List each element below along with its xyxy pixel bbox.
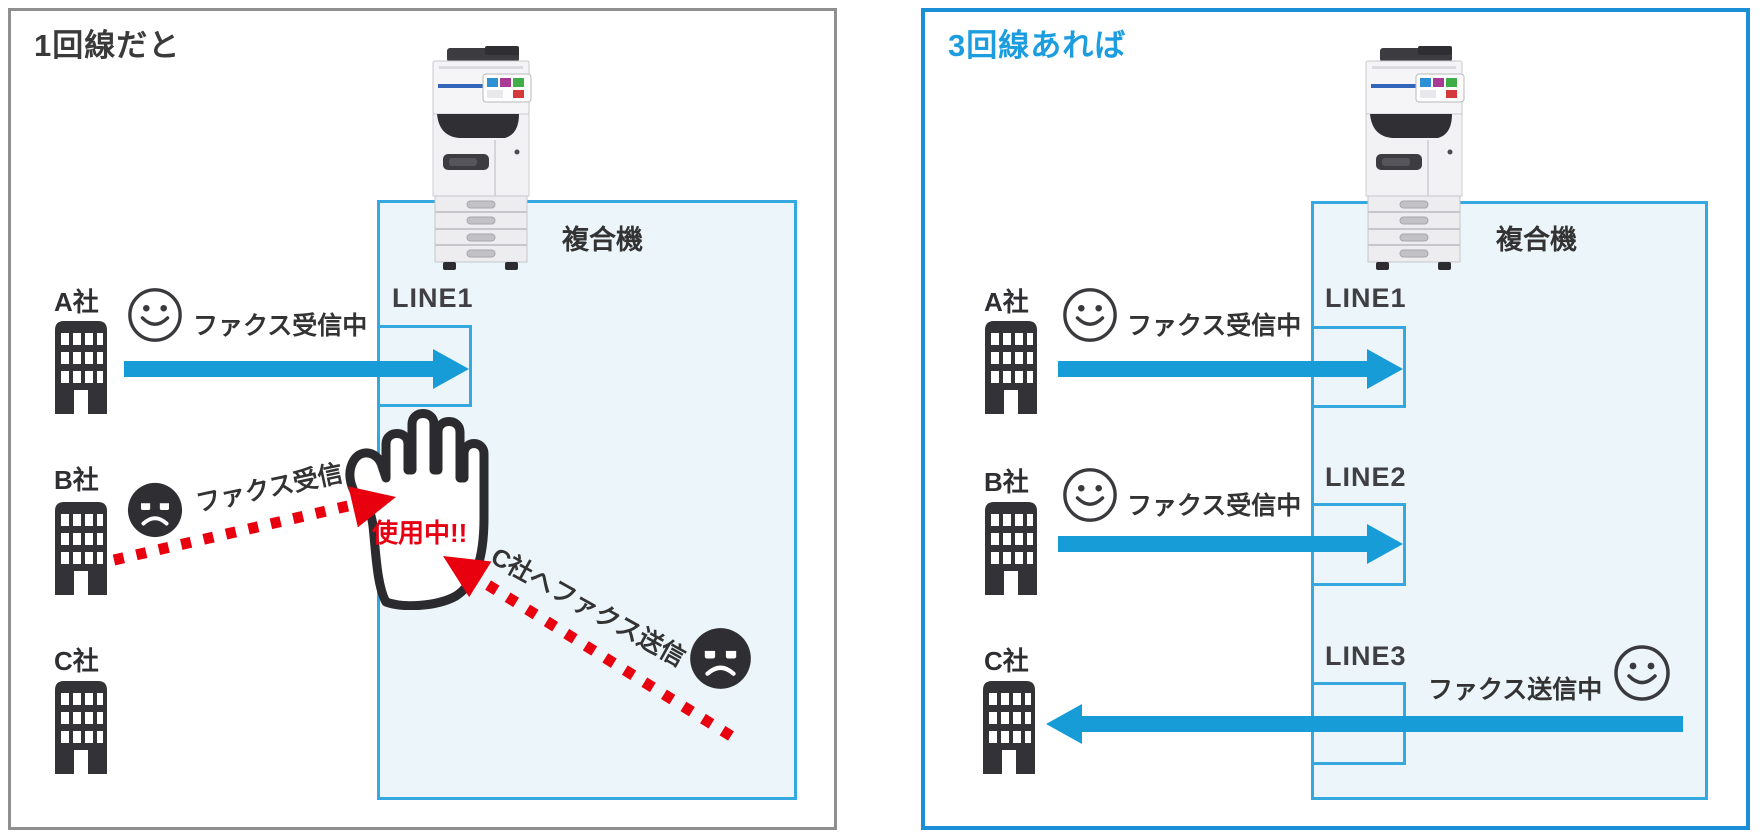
building-icon-c-right (978, 678, 1040, 774)
happy-face-icon-c-right (1612, 643, 1672, 703)
left-company-a-label: A社 (54, 282, 99, 319)
left-company-b-label: B社 (54, 460, 99, 497)
building-icon-b-left (50, 499, 112, 595)
building-icon-a-right (980, 318, 1042, 414)
building-icon-b-right (980, 499, 1042, 595)
mfp-printer-image-right (1358, 46, 1470, 272)
right-line2-label: LINE2 (1325, 462, 1407, 493)
left-company-a-status: ファクス受信中 (193, 306, 367, 342)
building-icon-a-left (50, 318, 112, 414)
sad-face-icon-b-left (126, 481, 184, 539)
right-panel-title: 3回線あれば (948, 20, 1126, 65)
right-line2-port (1311, 503, 1406, 586)
right-line3-label: LINE3 (1325, 641, 1407, 672)
mfp-printer-image-left (425, 46, 537, 272)
right-company-b-status: ファクス受信中 (1127, 486, 1301, 522)
right-company-a-status: ファクス受信中 (1127, 306, 1301, 342)
right-line1-port (1311, 326, 1406, 408)
left-company-c-label: C社 (54, 641, 99, 678)
left-line1-port (377, 325, 472, 407)
stop-hand-icon (342, 398, 502, 610)
right-machine-label: 複合機 (1496, 218, 1577, 257)
left-machine-label: 複合機 (562, 218, 643, 257)
busy-label: 使用中!! (372, 513, 467, 550)
left-panel-title: 1回線だと (34, 20, 180, 65)
right-line1-label: LINE1 (1325, 283, 1407, 314)
sad-face-icon-c-left (688, 626, 753, 691)
right-company-c-status: ファクス送信中 (1428, 670, 1602, 706)
left-line1-label: LINE1 (392, 283, 474, 314)
happy-face-icon-b-right (1061, 466, 1119, 524)
right-company-c-label: C社 (984, 641, 1029, 678)
right-company-b-label: B社 (984, 462, 1029, 499)
building-icon-c-left (50, 678, 112, 774)
right-company-a-label: A社 (984, 282, 1029, 319)
happy-face-icon-a-right (1061, 286, 1119, 344)
happy-face-icon-a-left (126, 286, 184, 344)
fax-lines-comparison-diagram: 1回線だと 複合機 LINE1 (0, 0, 1760, 840)
right-line3-port (1311, 682, 1406, 765)
